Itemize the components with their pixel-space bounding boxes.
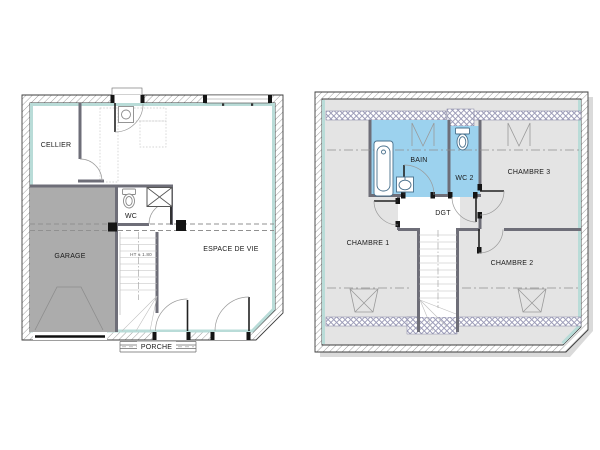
label-garage: GARAGE xyxy=(54,253,85,260)
cellier-door-arc xyxy=(80,159,102,181)
floorplan-image: HT ± 1.80 xyxy=(0,0,600,450)
sink-icon xyxy=(397,177,414,192)
upper-floor-plan: BAIN WC 2 CHAMBRE 3 DGT CHAMBRE 1 CHAMBR… xyxy=(315,92,593,357)
label-espace-de-vie: ESPACE DE VIE xyxy=(203,246,259,253)
staircase-ground: HT ± 1.80 xyxy=(120,232,157,331)
label-porche: PORCHE xyxy=(141,344,172,351)
closet-icon xyxy=(147,188,172,207)
label-wc2: WC 2 xyxy=(455,175,473,182)
french-door xyxy=(211,297,251,340)
label-chambre1: CHAMBRE 1 xyxy=(347,240,390,247)
label-bain: BAIN xyxy=(410,157,427,164)
basin-icon xyxy=(119,107,134,123)
label-dgt: DGT xyxy=(435,210,451,217)
floorplan-canvas: HT ± 1.80 xyxy=(0,0,600,450)
label-chambre2: CHAMBRE 2 xyxy=(491,260,534,267)
bathtub-icon xyxy=(374,141,393,196)
label-wc: WC xyxy=(125,213,137,220)
ground-floor-plan: HT ± 1.80 xyxy=(22,88,283,352)
toilet2-icon xyxy=(456,128,470,150)
toilet-icon xyxy=(123,189,136,208)
stair-height-note: HT ± 1.80 xyxy=(130,252,152,257)
label-cellier: CELLIER xyxy=(41,142,72,149)
label-chambre3: CHAMBRE 3 xyxy=(508,169,551,176)
